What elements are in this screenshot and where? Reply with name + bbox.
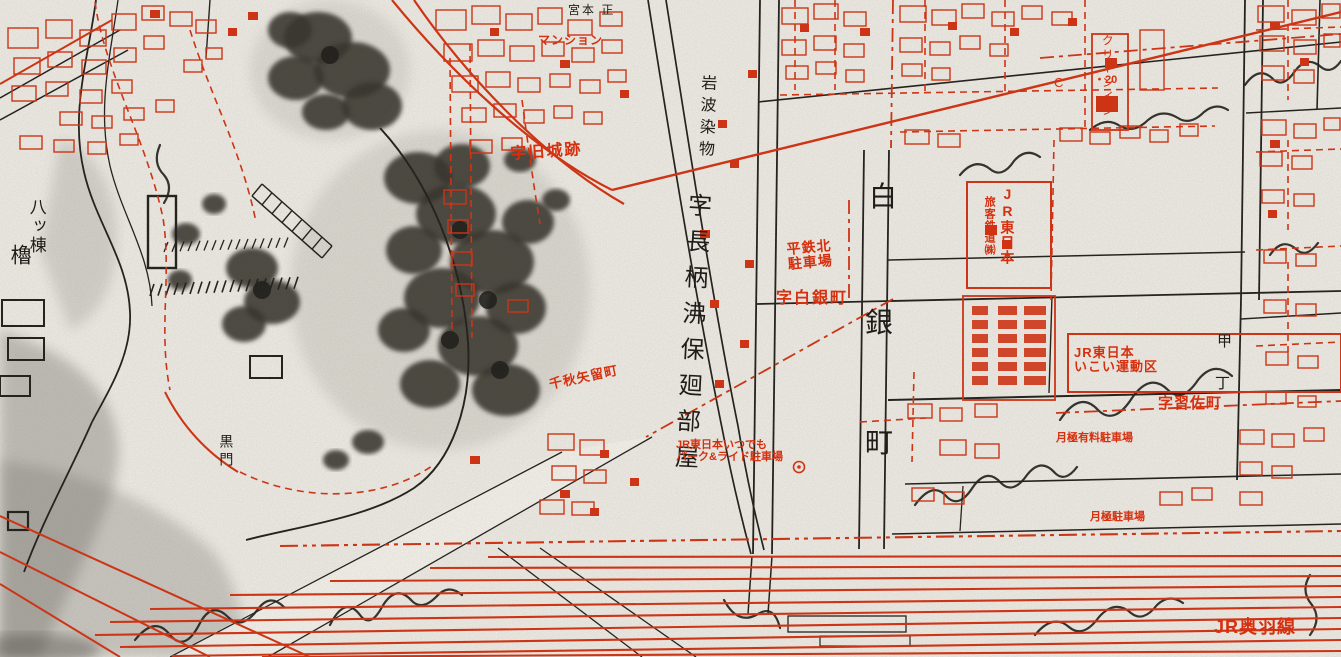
map-canvas	[0, 0, 1341, 657]
scanned-city-map: 八ッ棟櫓字旧城跡岩波染物字長柄沸保廻部屋平鉄北 駐車場字白銀町白銀町JR東日本旅…	[0, 0, 1341, 657]
